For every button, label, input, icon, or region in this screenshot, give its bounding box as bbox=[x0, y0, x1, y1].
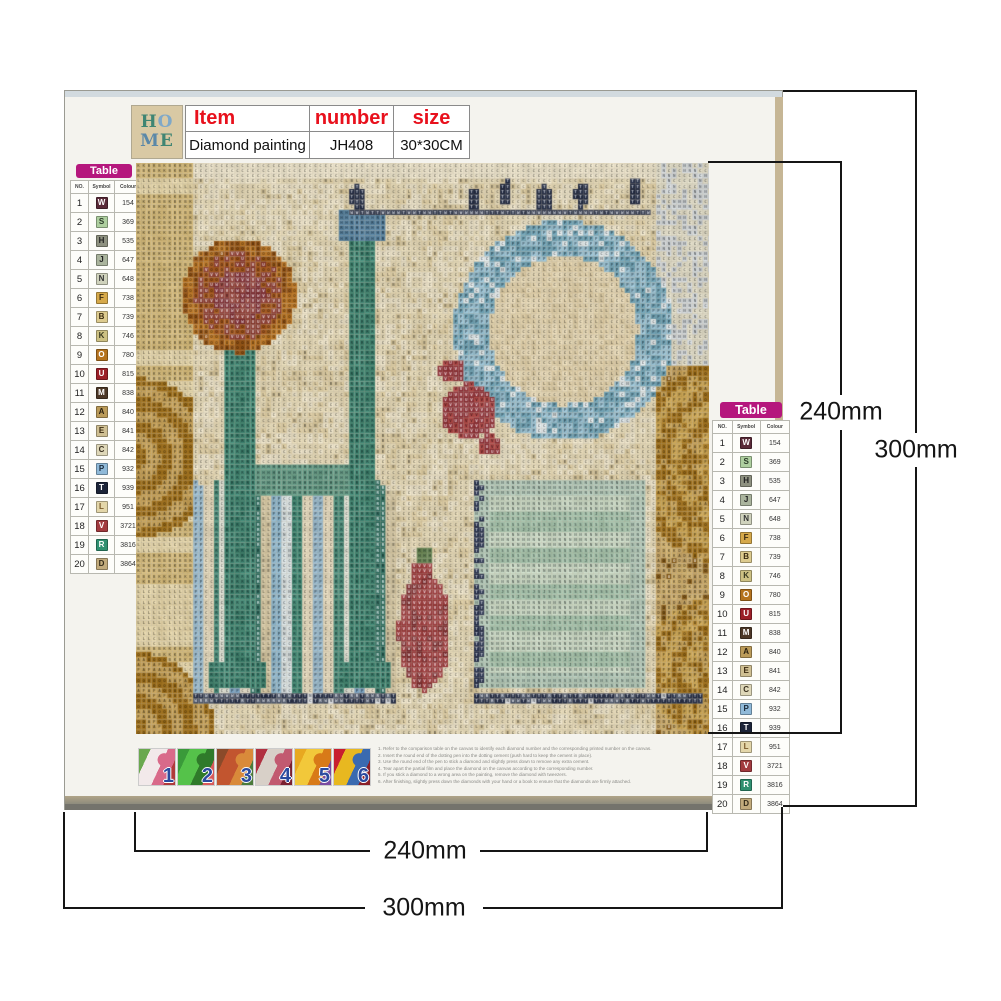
palette-row-number: 10 bbox=[713, 605, 733, 624]
palette-symbol-cell: P bbox=[89, 460, 115, 479]
step-number: 4 bbox=[280, 765, 291, 788]
palette-row-number: 3 bbox=[713, 472, 733, 491]
palette-row: 5N648 bbox=[713, 510, 790, 529]
palette-symbol-chip: R bbox=[96, 539, 108, 551]
palette-row: 2S369 bbox=[71, 213, 142, 232]
palette-symbol-chip: V bbox=[740, 760, 752, 772]
palette-column-header: Symbol bbox=[89, 181, 115, 194]
dim-240-right-top-connector bbox=[708, 161, 841, 163]
palette-color-code: 840 bbox=[760, 643, 789, 662]
palette-row-number: 6 bbox=[71, 289, 89, 308]
palette-row: 5N648 bbox=[71, 270, 142, 289]
palette-color-code: 738 bbox=[760, 529, 789, 548]
palette-symbol-cell: R bbox=[732, 776, 760, 795]
palette-row: 12A840 bbox=[71, 403, 142, 422]
palette-row-number: 2 bbox=[713, 453, 733, 472]
palette-symbol-chip: F bbox=[740, 532, 752, 544]
palette-symbol-cell: H bbox=[732, 472, 760, 491]
dim-240-right-line-b bbox=[840, 430, 842, 734]
instruction-line: 5. If you stick a diamond to a wrong are… bbox=[378, 772, 712, 779]
palette-row: 6F738 bbox=[713, 529, 790, 548]
item-label: Item bbox=[186, 106, 310, 132]
palette-row-number: 5 bbox=[71, 270, 89, 289]
palette-symbol-chip: A bbox=[96, 406, 108, 418]
palette-color-code: 838 bbox=[760, 624, 789, 643]
palette-symbol-cell: W bbox=[89, 194, 115, 213]
instruction-line: 2. Insert the round end of the dotting p… bbox=[378, 753, 712, 760]
home-logo: HOME bbox=[131, 105, 183, 159]
palette-color-code: 841 bbox=[760, 662, 789, 681]
palette-row-number: 8 bbox=[713, 567, 733, 586]
palette-symbol-cell: S bbox=[732, 453, 760, 472]
palette-row: 18V3721 bbox=[713, 757, 790, 776]
palette-symbol-chip: M bbox=[96, 387, 108, 399]
palette-symbol-chip: C bbox=[740, 684, 752, 696]
palette-row-number: 14 bbox=[71, 441, 89, 460]
palette-row-number: 6 bbox=[713, 529, 733, 548]
dim-300-right-line-b bbox=[915, 467, 917, 807]
palette-symbol-cell: U bbox=[89, 365, 115, 384]
size-label: size bbox=[394, 106, 470, 132]
palette-symbol-chip: D bbox=[96, 558, 108, 570]
palette-row: 2S369 bbox=[713, 453, 790, 472]
instruction-line: 3. Use the round end of the pen to stick… bbox=[378, 759, 712, 766]
palette-symbol-cell: W bbox=[732, 434, 760, 453]
palette-row: 20D3864 bbox=[71, 555, 142, 574]
logo-row: ME bbox=[140, 132, 174, 151]
palette-row: 7B739 bbox=[713, 548, 790, 567]
number-label: number bbox=[310, 106, 394, 132]
palette-symbol-cell: K bbox=[732, 567, 760, 586]
logo-letter: O bbox=[158, 112, 174, 132]
palette-row-number: 7 bbox=[71, 308, 89, 327]
palette-symbol-chip: E bbox=[96, 425, 108, 437]
palette-row-number: 18 bbox=[71, 517, 89, 536]
dim-300-right-bottom-connector bbox=[783, 805, 917, 807]
palette-symbol-cell: M bbox=[89, 384, 115, 403]
palette-symbol-chip: L bbox=[96, 501, 108, 513]
board-shadow bbox=[65, 804, 783, 810]
palette-symbol-chip: U bbox=[740, 608, 752, 620]
step-thumbnail: 1 bbox=[138, 748, 176, 786]
palette-color-code: 746 bbox=[760, 567, 789, 586]
palette-row: 19R3816 bbox=[71, 536, 142, 555]
palette-row-number: 16 bbox=[713, 719, 733, 738]
logo-row: HO bbox=[141, 113, 174, 132]
palette-row-number: 15 bbox=[71, 460, 89, 479]
step-number: 6 bbox=[358, 765, 369, 788]
palette-symbol-cell: S bbox=[89, 213, 115, 232]
palette-symbol-chip: J bbox=[96, 254, 108, 266]
canvas-board: HOME Item number size Diamond painting J… bbox=[64, 90, 783, 810]
palette-symbol-chip: K bbox=[96, 330, 108, 342]
palette-symbol-cell: O bbox=[89, 346, 115, 365]
logo-letter: H bbox=[141, 112, 158, 132]
palette-row: 20D3864 bbox=[713, 795, 790, 814]
dim-300-right-line-a bbox=[915, 90, 917, 433]
palette-symbol-chip: B bbox=[740, 551, 752, 563]
dim-300-bottom-riser-left bbox=[63, 812, 65, 909]
board-top-edge bbox=[65, 91, 782, 97]
palette-row-number: 17 bbox=[71, 498, 89, 517]
palette-row: 4J647 bbox=[71, 251, 142, 270]
palette-row: 16T939 bbox=[71, 479, 142, 498]
palette-column-header: NO. bbox=[713, 421, 733, 434]
palette-row-number: 13 bbox=[713, 662, 733, 681]
palette-row-number: 10 bbox=[71, 365, 89, 384]
dim-240-bottom-riser-left bbox=[134, 812, 136, 852]
palette-row: 13E841 bbox=[71, 422, 142, 441]
palette-symbol-chip: O bbox=[96, 349, 108, 361]
palette-symbol-chip: H bbox=[96, 235, 108, 247]
instruction-line: 4. Tear apart the partial film and place… bbox=[378, 766, 712, 773]
dim-240-bottom-riser-right bbox=[706, 812, 708, 852]
instruction-line: 6. After finishing, slightly press down … bbox=[378, 779, 712, 786]
palette-row: 3H535 bbox=[71, 232, 142, 251]
palette-symbol-chip: E bbox=[740, 665, 752, 677]
palette-color-code: 647 bbox=[760, 491, 789, 510]
palette-row-number: 7 bbox=[713, 548, 733, 567]
palette-row: 8K746 bbox=[71, 327, 142, 346]
palette-row-number: 16 bbox=[71, 479, 89, 498]
palette-color-code: 951 bbox=[760, 738, 789, 757]
palette-symbol-cell: O bbox=[732, 586, 760, 605]
palette-row: 16T939 bbox=[713, 719, 790, 738]
palette-row: 14C842 bbox=[71, 441, 142, 460]
palette-row: 3H535 bbox=[713, 472, 790, 491]
palette-symbol-cell: K bbox=[89, 327, 115, 346]
palette-row-number: 1 bbox=[713, 434, 733, 453]
palette-row-number: 18 bbox=[713, 757, 733, 776]
palette-row: 17L951 bbox=[713, 738, 790, 757]
palette-row: 1W154 bbox=[713, 434, 790, 453]
palette-symbol-chip: M bbox=[740, 627, 752, 639]
palette-column-header: Colour bbox=[760, 421, 789, 434]
palette-row-number: 15 bbox=[713, 700, 733, 719]
palette-row: 19R3816 bbox=[713, 776, 790, 795]
palette-color-code: 154 bbox=[760, 434, 789, 453]
palette-color-code: 780 bbox=[760, 586, 789, 605]
palette-row: 13E841 bbox=[713, 662, 790, 681]
palette-symbol-cell: N bbox=[732, 510, 760, 529]
palette-row-number: 9 bbox=[713, 586, 733, 605]
palette-row-number: 8 bbox=[71, 327, 89, 346]
palette-symbol-chip: U bbox=[96, 368, 108, 380]
dim-300-bottom-riser-right bbox=[781, 807, 783, 909]
palette-symbol-chip: P bbox=[96, 463, 108, 475]
step-thumbnail: 5 bbox=[294, 748, 332, 786]
palette-color-code: 3721 bbox=[760, 757, 789, 776]
palette-symbol-chip: H bbox=[740, 475, 752, 487]
color-table-left-title: Table bbox=[76, 164, 132, 178]
dim-240-bottom-line-a bbox=[134, 850, 370, 852]
logo-letter: M bbox=[140, 131, 160, 151]
palette-color-code: 932 bbox=[760, 700, 789, 719]
palette-symbol-chip: P bbox=[740, 703, 752, 715]
palette-row-number: 13 bbox=[71, 422, 89, 441]
artwork-canvas bbox=[136, 163, 709, 734]
palette-row: 4J647 bbox=[713, 491, 790, 510]
palette-row-number: 2 bbox=[71, 213, 89, 232]
palette-color-code: 939 bbox=[760, 719, 789, 738]
palette-symbol-chip: V bbox=[96, 520, 108, 532]
palette-symbol-cell: E bbox=[732, 662, 760, 681]
spec-table: Item number size Diamond painting JH408 … bbox=[185, 105, 470, 159]
palette-symbol-cell: M bbox=[732, 624, 760, 643]
step-number: 3 bbox=[241, 765, 252, 788]
palette-symbol-cell: J bbox=[89, 251, 115, 270]
palette-color-code: 3864 bbox=[760, 795, 789, 814]
palette-color-code: 648 bbox=[760, 510, 789, 529]
step-thumbnail: 4 bbox=[255, 748, 293, 786]
palette-symbol-cell: R bbox=[89, 536, 115, 555]
palette-symbol-chip: L bbox=[740, 741, 752, 753]
palette-row-number: 11 bbox=[71, 384, 89, 403]
spec-header: HOME Item number size Diamond painting J… bbox=[131, 105, 470, 159]
palette-color-code: 535 bbox=[760, 472, 789, 491]
number-value: JH408 bbox=[310, 132, 394, 159]
palette-symbol-cell: F bbox=[732, 529, 760, 548]
palette-symbol-cell: B bbox=[89, 308, 115, 327]
palette-row: 6F738 bbox=[71, 289, 142, 308]
dim-300-right-top-connector bbox=[783, 90, 917, 92]
dim-240-right-line-a bbox=[840, 161, 842, 395]
logo-letter: E bbox=[160, 131, 174, 151]
palette-row: 10U815 bbox=[71, 365, 142, 384]
palette-symbol-cell: C bbox=[732, 681, 760, 700]
dim-240-bottom-label: 240mm bbox=[377, 837, 472, 866]
palette-row-number: 3 bbox=[71, 232, 89, 251]
color-table-left: Table NO.SymbolColour1W1542S3693H5354J64… bbox=[70, 164, 138, 574]
palette-symbol-chip: A bbox=[740, 646, 752, 658]
step-thumbnails: 123456 bbox=[138, 748, 371, 786]
palette-symbol-cell: H bbox=[89, 232, 115, 251]
palette-row: 7B739 bbox=[71, 308, 142, 327]
color-table-right: Table NO.SymbolColour1W1542S3693H5354J64… bbox=[712, 402, 790, 814]
palette-row-number: 1 bbox=[71, 194, 89, 213]
dim-300-bottom-label: 300mm bbox=[376, 894, 471, 923]
palette-row-number: 19 bbox=[713, 776, 733, 795]
palette-column-header: Symbol bbox=[732, 421, 760, 434]
palette-row: 11M838 bbox=[713, 624, 790, 643]
size-value: 30*30CM bbox=[394, 132, 470, 159]
palette-color-code: 3816 bbox=[760, 776, 789, 795]
palette-row: 8K746 bbox=[713, 567, 790, 586]
palette-row-number: 17 bbox=[713, 738, 733, 757]
palette-symbol-cell: D bbox=[89, 555, 115, 574]
palette-symbol-chip: C bbox=[96, 444, 108, 456]
palette-symbol-chip: S bbox=[740, 456, 752, 468]
dim-240-bottom-line-b bbox=[480, 850, 708, 852]
dim-300-bottom-line-b bbox=[483, 907, 783, 909]
palette-symbol-cell: D bbox=[732, 795, 760, 814]
step-thumbnail: 6 bbox=[333, 748, 371, 786]
palette-symbol-chip: D bbox=[740, 798, 752, 810]
palette-symbol-cell: A bbox=[89, 403, 115, 422]
dim-300-bottom-line-a bbox=[63, 907, 365, 909]
palette-symbol-cell: A bbox=[732, 643, 760, 662]
palette-symbol-cell: T bbox=[732, 719, 760, 738]
palette-symbol-chip: O bbox=[740, 589, 752, 601]
palette-symbol-chip: T bbox=[96, 482, 108, 494]
palette-symbol-chip: W bbox=[740, 437, 752, 449]
palette-color-code: 739 bbox=[760, 548, 789, 567]
palette-row-number: 4 bbox=[71, 251, 89, 270]
palette-header-row: NO.SymbolColour bbox=[71, 181, 142, 194]
palette-row-number: 4 bbox=[713, 491, 733, 510]
palette-row: 15P932 bbox=[713, 700, 790, 719]
palette-symbol-cell: L bbox=[89, 498, 115, 517]
palette-symbol-chip: B bbox=[96, 311, 108, 323]
palette-symbol-cell: U bbox=[732, 605, 760, 624]
palette-row: 18V3721 bbox=[71, 517, 142, 536]
step-number: 2 bbox=[202, 765, 213, 788]
palette-row-number: 19 bbox=[71, 536, 89, 555]
palette-symbol-cell: V bbox=[732, 757, 760, 776]
step-number: 5 bbox=[319, 765, 330, 788]
step-thumbnail: 3 bbox=[216, 748, 254, 786]
palette-symbol-cell: J bbox=[732, 491, 760, 510]
palette-symbol-cell: L bbox=[732, 738, 760, 757]
step-number: 1 bbox=[163, 765, 174, 788]
palette-symbol-cell: E bbox=[89, 422, 115, 441]
palette-row: 17L951 bbox=[71, 498, 142, 517]
color-table-left-grid: NO.SymbolColour1W1542S3693H5354J6475N648… bbox=[70, 180, 142, 574]
palette-symbol-cell: V bbox=[89, 517, 115, 536]
palette-header-row: NO.SymbolColour bbox=[713, 421, 790, 434]
palette-color-code: 842 bbox=[760, 681, 789, 700]
spec-header-row: Item number size bbox=[186, 106, 470, 132]
palette-row-number: 20 bbox=[71, 555, 89, 574]
palette-symbol-chip: N bbox=[740, 513, 752, 525]
palette-symbol-chip: J bbox=[740, 494, 752, 506]
dim-240-right-bottom-connector bbox=[708, 732, 841, 734]
instruction-line: 1. Refer to the comparison table on the … bbox=[378, 746, 712, 753]
palette-symbol-cell: P bbox=[732, 700, 760, 719]
palette-row-number: 11 bbox=[713, 624, 733, 643]
palette-row: 1W154 bbox=[71, 194, 142, 213]
palette-row-number: 14 bbox=[713, 681, 733, 700]
palette-symbol-chip: W bbox=[96, 197, 108, 209]
palette-column-header: NO. bbox=[71, 181, 89, 194]
palette-row-number: 20 bbox=[713, 795, 733, 814]
dim-300-right-label: 300mm bbox=[868, 436, 963, 465]
palette-row: 12A840 bbox=[713, 643, 790, 662]
palette-row: 10U815 bbox=[713, 605, 790, 624]
palette-color-code: 815 bbox=[760, 605, 789, 624]
palette-row-number: 12 bbox=[71, 403, 89, 422]
palette-symbol-cell: C bbox=[89, 441, 115, 460]
palette-row: 14C842 bbox=[713, 681, 790, 700]
palette-symbol-chip: F bbox=[96, 292, 108, 304]
palette-row: 9O780 bbox=[71, 346, 142, 365]
palette-symbol-cell: T bbox=[89, 479, 115, 498]
spec-value-row: Diamond painting JH408 30*30CM bbox=[186, 132, 470, 159]
palette-symbol-cell: B bbox=[732, 548, 760, 567]
item-value: Diamond painting bbox=[186, 132, 310, 159]
palette-symbol-chip: K bbox=[740, 570, 752, 582]
color-table-right-grid: NO.SymbolColour1W1542S3693H5354J6475N648… bbox=[712, 420, 790, 814]
palette-row: 15P932 bbox=[71, 460, 142, 479]
product-image: HOME Item number size Diamond painting J… bbox=[0, 0, 1001, 1001]
palette-row: 11M838 bbox=[71, 384, 142, 403]
palette-symbol-chip: S bbox=[96, 216, 108, 228]
palette-row: 9O780 bbox=[713, 586, 790, 605]
color-table-right-title: Table bbox=[720, 402, 782, 418]
palette-row-number: 5 bbox=[713, 510, 733, 529]
palette-symbol-chip: R bbox=[740, 779, 752, 791]
dim-240-right-label: 240mm bbox=[793, 398, 888, 427]
palette-symbol-chip: N bbox=[96, 273, 108, 285]
palette-row-number: 12 bbox=[713, 643, 733, 662]
palette-row-number: 9 bbox=[71, 346, 89, 365]
palette-symbol-cell: F bbox=[89, 289, 115, 308]
step-thumbnail: 2 bbox=[177, 748, 215, 786]
instructions-list: 1. Refer to the comparison table on the … bbox=[378, 746, 712, 786]
palette-color-code: 369 bbox=[760, 453, 789, 472]
palette-symbol-cell: N bbox=[89, 270, 115, 289]
